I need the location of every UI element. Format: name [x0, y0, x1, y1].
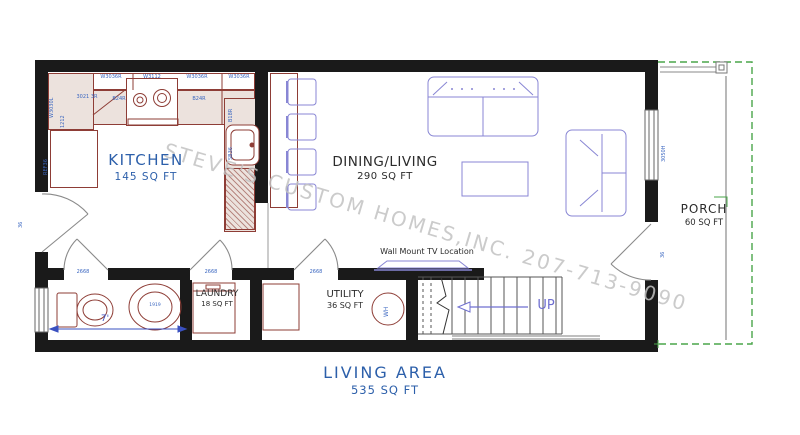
cabinet-code: B24R — [186, 97, 212, 102]
floor-plan: STEVE'S CUSTOM HOMES,INC. 207-713-9090 K… — [0, 0, 800, 435]
cabinet-code: W3036R — [226, 75, 252, 80]
right-window — [645, 110, 658, 180]
laundry-label: LAUNDRY — [186, 289, 248, 299]
dining-living-label: DINING/LIVING — [305, 154, 465, 170]
door-code: 2668 — [68, 270, 98, 275]
up-label: UP — [531, 298, 561, 313]
kitchen-area: 145 SQ FT — [86, 171, 206, 183]
cabinet-code: B24R — [106, 97, 132, 102]
bath-width-dim: 7' — [90, 314, 120, 324]
cabinet-code: B18R — [229, 109, 234, 122]
cabinet-code: REF36 — [44, 159, 49, 175]
range-burners — [128, 90, 178, 126]
cabinet-code: 3021 3R — [70, 95, 104, 100]
stairs — [418, 277, 600, 339]
porch-post — [716, 62, 727, 73]
stair-break-line — [437, 277, 449, 334]
cabinet-code: W3036R — [98, 75, 124, 80]
living-area-size: 535 SQ FT — [285, 383, 485, 397]
tv-location-label: Wall Mount TV Location — [357, 247, 497, 256]
door-code: 36 — [19, 222, 24, 228]
tv-symbol — [374, 261, 472, 270]
sofa-right — [566, 130, 626, 216]
cabinet-code: SB36 — [229, 147, 234, 160]
kitchen-label: KITCHEN — [86, 151, 206, 169]
corner-cabinet-diagonal — [93, 90, 125, 115]
living-area-label: LIVING AREA — [285, 363, 485, 382]
window-code: 3050H — [662, 146, 667, 162]
cabinet-code: 1212 — [61, 115, 66, 128]
cabinet-code: W3112 — [139, 75, 165, 80]
utility-area: 36 SQ FT — [308, 301, 382, 310]
coffee-table — [462, 162, 528, 196]
dining-living-area: 290 SQ FT — [305, 171, 465, 182]
utility-box — [263, 284, 299, 330]
bath-window — [35, 288, 48, 332]
sofa-top — [428, 77, 538, 136]
door-code: 2668 — [301, 270, 331, 275]
laundry-area: 18 SQ FT — [186, 300, 248, 308]
porch-area: 60 SQ FT — [664, 218, 744, 228]
cabinet-code: W3030L — [50, 98, 55, 118]
utility-label: UTILITY — [308, 289, 382, 300]
water-heater-label: WH — [384, 307, 390, 317]
bath-sink-code: 1919 — [146, 304, 164, 309]
cabinet-code: W3036R — [184, 75, 210, 80]
door-code: 2668 — [196, 270, 226, 275]
door-code: 36 — [661, 252, 666, 258]
porch-label: PORCH — [664, 202, 744, 216]
